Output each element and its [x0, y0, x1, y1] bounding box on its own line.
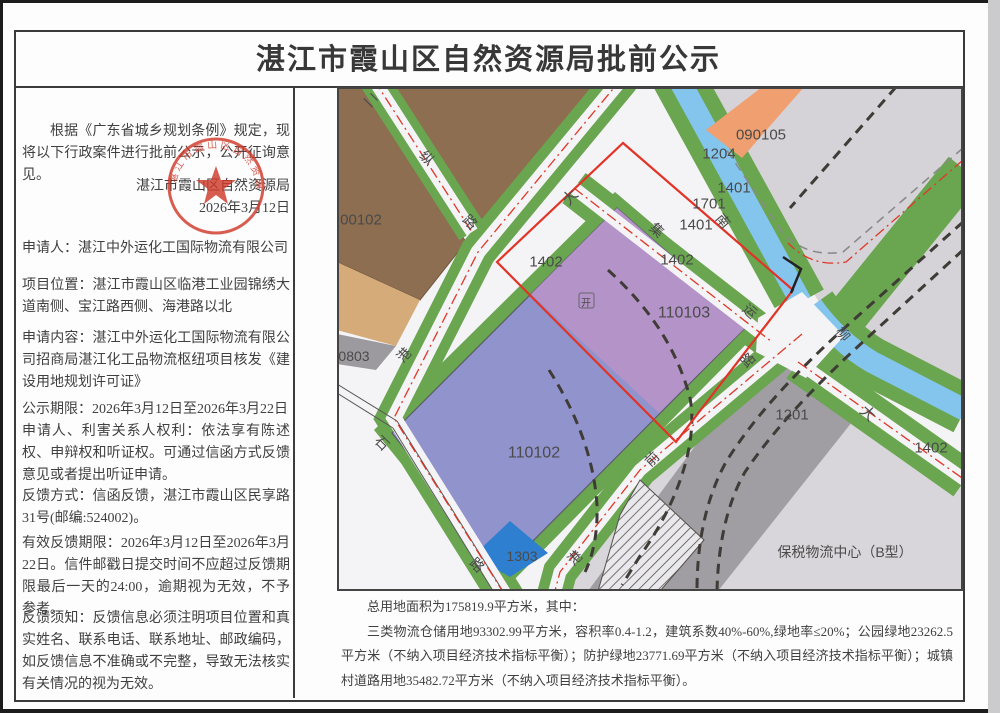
map-label: 1701: [692, 195, 725, 212]
column-divider: [293, 87, 295, 698]
summary-total-area: 总用地面积为175819.9平方米，其中：: [341, 595, 953, 620]
scan-edge-left: [0, 0, 3, 713]
scan-edge-right: [988, 0, 1000, 713]
map-label: 00102: [340, 211, 382, 228]
applicant-paragraph: 申请人：湛江中外运化工国际物流有限公司: [22, 238, 290, 260]
map-label: 1402: [529, 253, 562, 270]
map-label: 1402: [914, 439, 947, 456]
map-label: 1401: [717, 179, 750, 196]
site-plan-map: 0010208030901051204140117011401140214021…: [337, 87, 963, 591]
period-paragraph: 公示期限：2026年3月12日至2026年3月22日: [22, 399, 290, 421]
summary-detail: 三类物流仓储用地93302.99平方米，容积率0.4-1.2，建筑系数40%-6…: [341, 620, 953, 694]
map-label: 1401: [679, 216, 712, 233]
map-label: 110103: [658, 305, 710, 322]
map-label: 保税物流中心（B型）: [777, 544, 912, 560]
content-paragraph: 申请内容：湛江中外运化工国际物流有限公司招商局湛江化工品物流枢纽项目核发《建设用…: [22, 328, 290, 394]
map-label: 110102: [508, 445, 560, 462]
rights-paragraph: 申请人、利害关系人权利：依法享有陈述权、申辩权和听证权。可通过信函方式反馈意见或…: [22, 421, 290, 487]
scan-edge-top: [0, 0, 1000, 3]
map-label: 090105: [736, 126, 786, 143]
land-use-summary: 总用地面积为175819.9平方米，其中： 三类物流仓储用地93302.99平方…: [341, 595, 953, 693]
date-line: 2026年3月12日: [22, 198, 324, 220]
map-label: 1204: [702, 145, 735, 162]
notice-page: 湛江市霞山区自然资源局批前公示 根据《广东省城乡规划条例》规定，现将以下行政案件…: [0, 0, 1000, 713]
agency-line: 湛江市霞山区自然资源局: [22, 176, 292, 198]
map-label: 开: [581, 299, 591, 310]
scan-edge-bottom: [0, 709, 1000, 713]
map-label: 0803: [338, 348, 369, 364]
notice-paragraph: 反馈须知：反馈信息必须注明项目位置和真实姓名、联系电话、联系地址、邮政编码，如反…: [22, 608, 290, 696]
map-label: 1201: [775, 406, 808, 423]
location-paragraph: 项目位置：湛江市霞山区临港工业园锦绣大道南侧、宝江路西侧、海港路以北: [22, 275, 290, 319]
feedback-paragraph: 反馈方式：信函反馈，湛江市霞山区民享路31号(邮编:524002)。: [22, 486, 290, 530]
page-title: 湛江市霞山区自然资源局批前公示: [14, 36, 963, 78]
map-label: 1303: [506, 548, 537, 564]
map-label: 1402: [660, 251, 693, 268]
